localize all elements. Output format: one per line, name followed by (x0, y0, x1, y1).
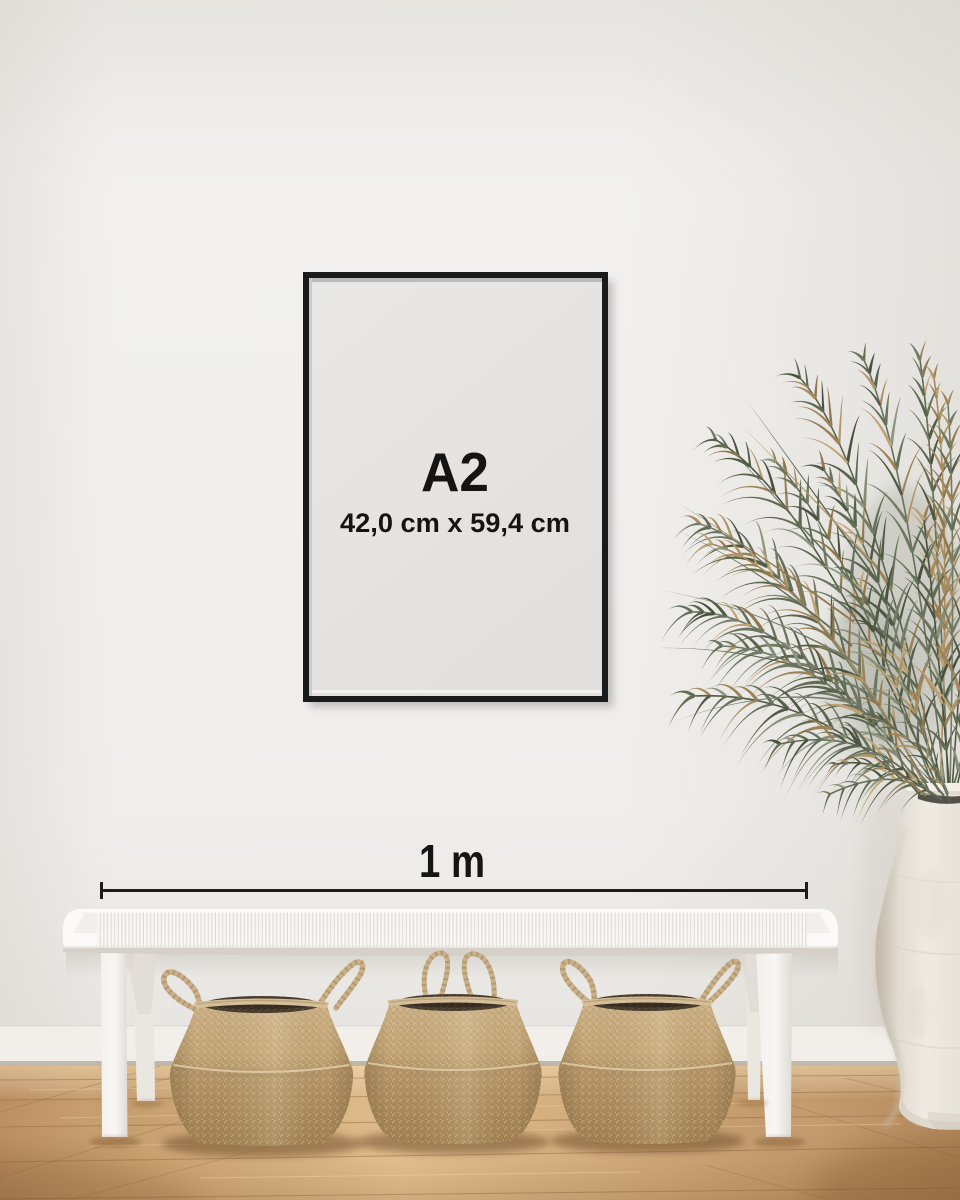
svg-text:1 m: 1 m (419, 835, 485, 887)
svg-text:A2: A2 (421, 441, 489, 503)
svg-text:42,0 cm x 59,4 cm: 42,0 cm x 59,4 cm (340, 508, 570, 538)
